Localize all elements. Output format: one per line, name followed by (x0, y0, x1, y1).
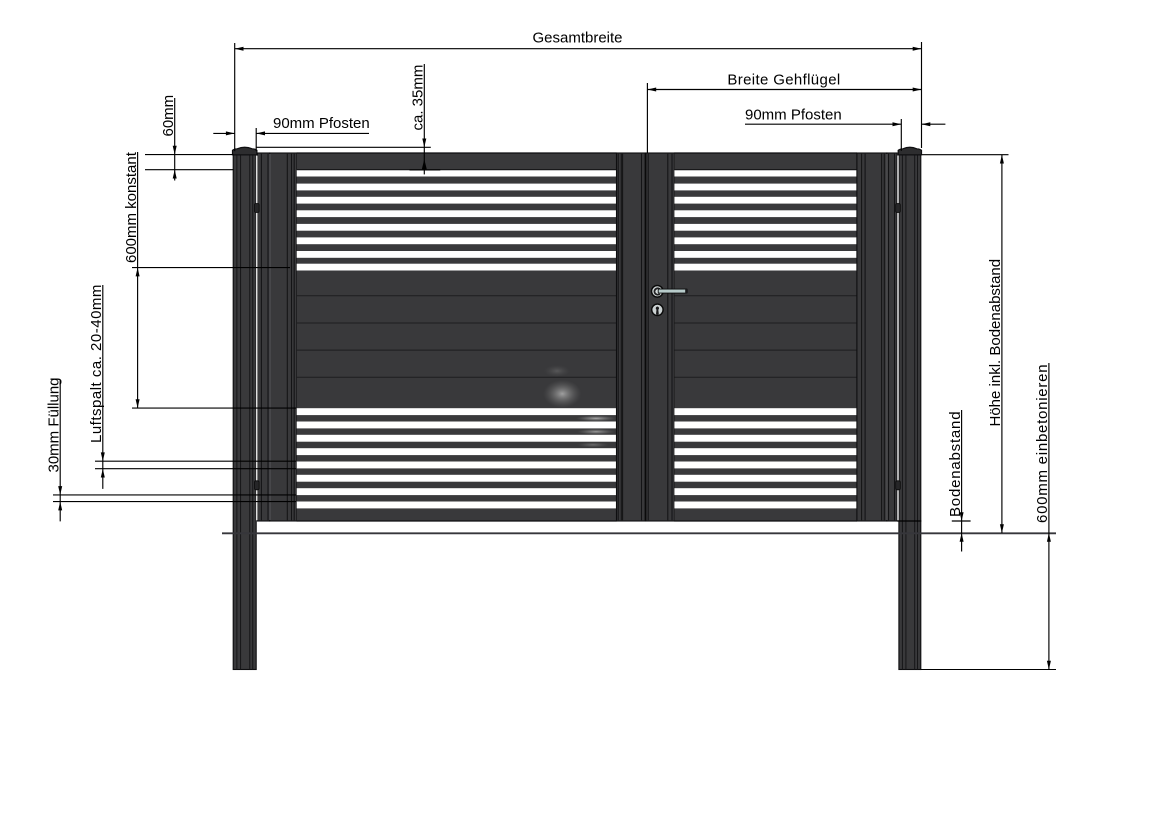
svg-text:ca. 35mm: ca. 35mm (410, 65, 427, 131)
svg-text:Luftspalt ca. 20-40mm: Luftspalt ca. 20-40mm (88, 284, 105, 443)
svg-text:30mm Füllung: 30mm Füllung (45, 377, 62, 472)
svg-text:Breite Gehflügel: Breite Gehflügel (727, 71, 840, 88)
svg-text:60mm: 60mm (160, 95, 177, 137)
svg-text:Höhe inkl. Bodenabstand: Höhe inkl. Bodenabstand (987, 259, 1004, 427)
svg-text:90mm Pfosten: 90mm Pfosten (745, 107, 842, 124)
svg-text:600mm einbetonieren: 600mm einbetonieren (1034, 364, 1051, 523)
svg-text:600mm konstant: 600mm konstant (123, 151, 140, 263)
svg-text:90mm Pfosten: 90mm Pfosten (273, 115, 370, 132)
svg-text:Bodenabstand: Bodenabstand (947, 411, 964, 517)
svg-text:Gesamtbreite: Gesamtbreite (532, 30, 622, 47)
